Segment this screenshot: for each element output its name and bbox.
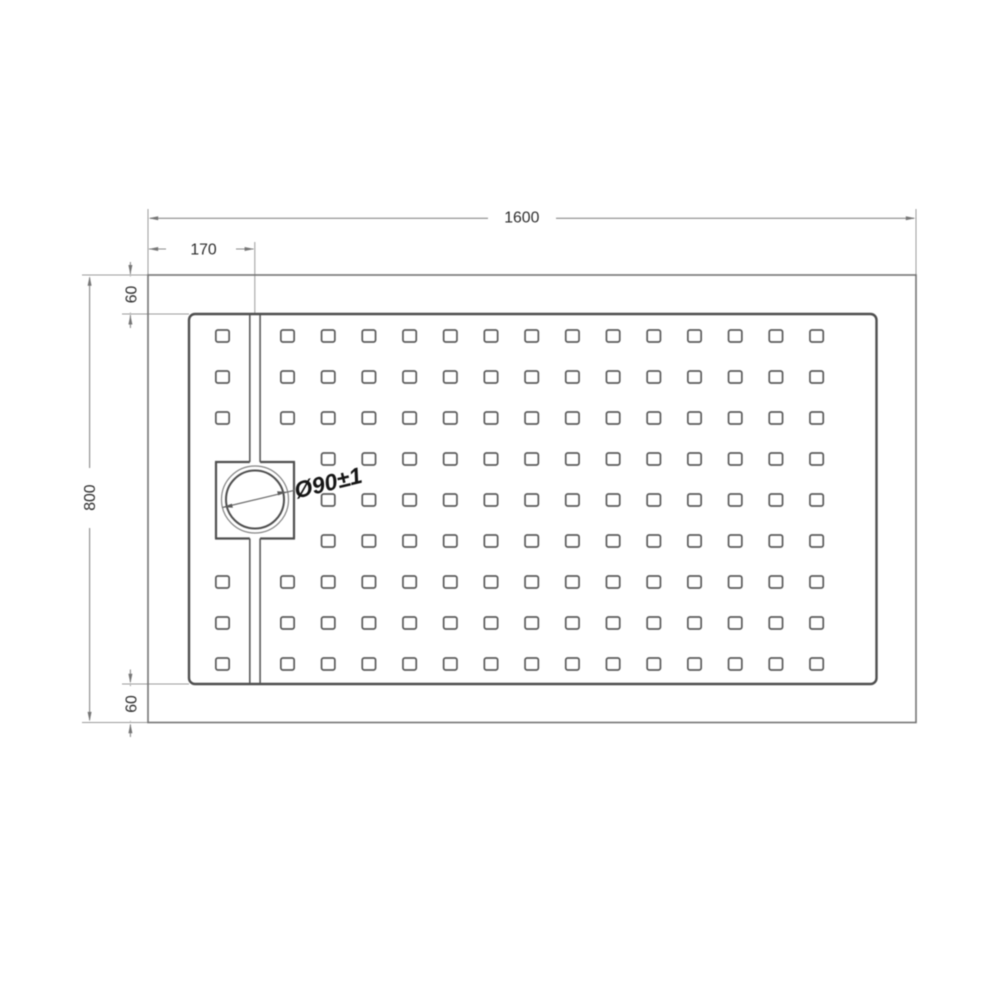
svg-text:60: 60	[123, 695, 140, 713]
svg-text:800: 800	[82, 484, 99, 511]
svg-text:1600: 1600	[504, 209, 539, 226]
svg-text:170: 170	[190, 241, 217, 258]
svg-text:60: 60	[123, 286, 140, 304]
